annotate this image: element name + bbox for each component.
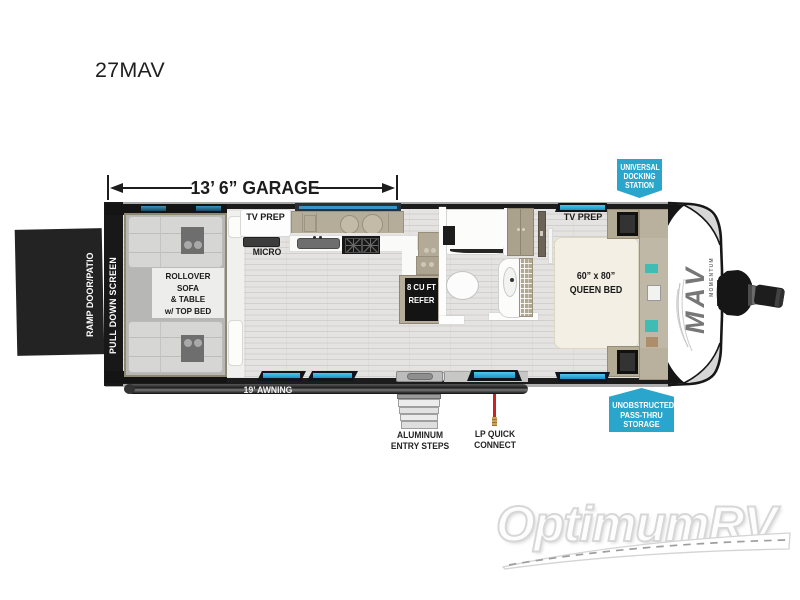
svg-text:MAV: MAV — [680, 264, 710, 334]
